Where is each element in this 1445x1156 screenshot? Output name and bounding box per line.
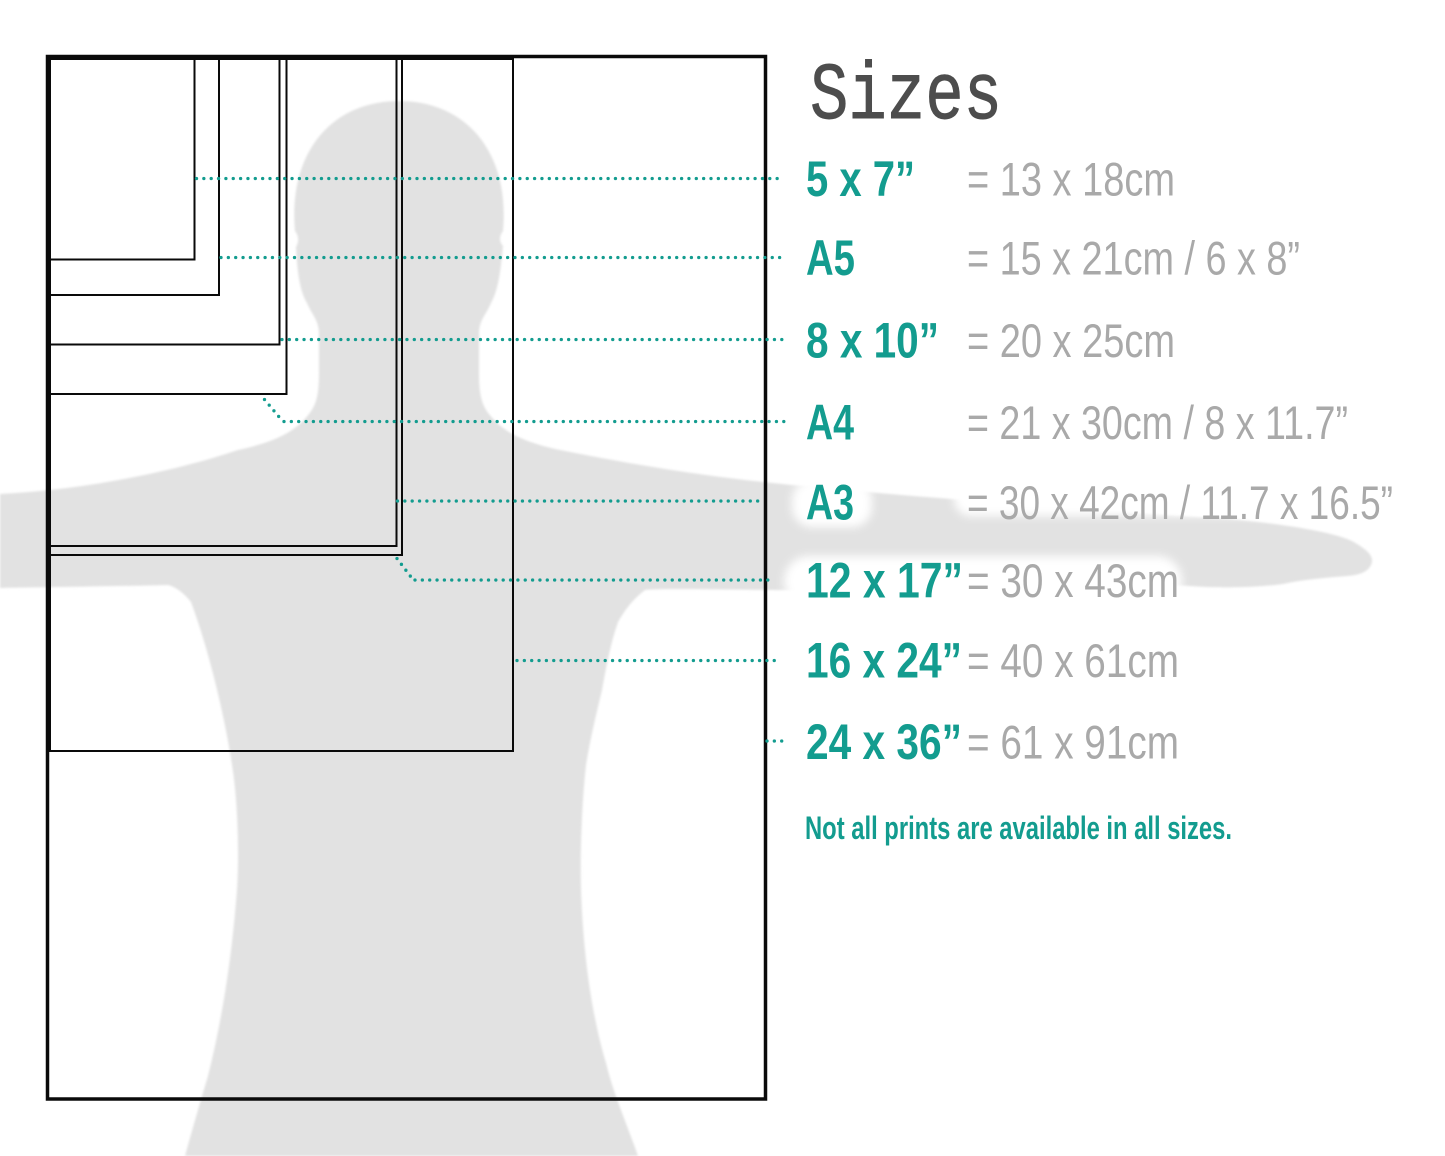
- svg-text:Sizes: Sizes: [810, 52, 1002, 143]
- svg-text:A4: A4: [806, 395, 854, 451]
- svg-text:= 61 x 91cm: = 61 x 91cm: [967, 716, 1179, 769]
- svg-text:8 x 10”: 8 x 10”: [806, 313, 939, 369]
- svg-text:A3: A3: [806, 475, 854, 531]
- svg-text:= 20 x 25cm: = 20 x 25cm: [967, 315, 1175, 368]
- svg-text:= 15 x 21cm / 6 x 8”: = 15 x 21cm / 6 x 8”: [967, 232, 1300, 285]
- svg-text:24 x 36”: 24 x 36”: [806, 714, 962, 770]
- svg-text:= 30 x 43cm: = 30 x 43cm: [967, 555, 1179, 608]
- svg-text:5 x 7”: 5 x 7”: [806, 151, 915, 207]
- svg-text:= 40 x 61cm: = 40 x 61cm: [967, 635, 1179, 688]
- svg-text:Not all prints are available i: Not all prints are available in all size…: [805, 810, 1232, 846]
- svg-text:16 x 24”: 16 x 24”: [806, 633, 962, 689]
- svg-text:= 30 x 42cm / 11.7 x 16.5”: = 30 x 42cm / 11.7 x 16.5”: [967, 477, 1393, 530]
- svg-text:= 21 x 30cm / 8 x 11.7”: = 21 x 30cm / 8 x 11.7”: [967, 397, 1348, 450]
- svg-text:= 13 x 18cm: = 13 x 18cm: [967, 153, 1175, 206]
- svg-text:A5: A5: [806, 230, 855, 286]
- svg-text:12 x 17”: 12 x 17”: [806, 553, 963, 609]
